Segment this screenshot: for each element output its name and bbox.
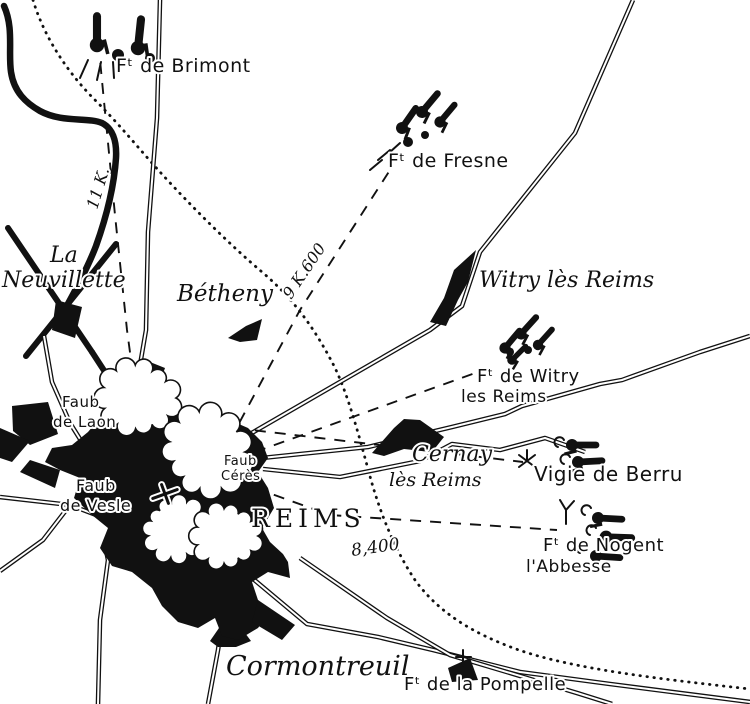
range-line-brimont xyxy=(100,60,138,412)
label-cernay-line1: Cernay xyxy=(412,442,493,467)
bombardment-map-of-reims: Fᵗ de Brimont Fᵗ de Fresne Fᵗ de Witry l… xyxy=(0,0,750,704)
village-betheny xyxy=(228,319,262,342)
label-la-neuvillette-line2: Neuvillette xyxy=(1,268,126,293)
label-faub-ceres-line1: Faub xyxy=(224,454,257,469)
road-network xyxy=(0,0,750,704)
label-fort-brimont: Fᵗ de Brimont xyxy=(116,55,251,77)
label-fort-witry-line2: les Reims xyxy=(461,387,547,407)
label-witry-les-reims: Witry lès Reims xyxy=(479,268,654,293)
label-vigie-de-berru: Vigie de Berru xyxy=(534,462,683,486)
label-betheny: Bétheny xyxy=(176,281,274,307)
label-fort-nogent-line2: l'Abbesse xyxy=(526,557,612,577)
label-la-neuvillette-line1: La xyxy=(49,243,78,268)
label-faub-ceres-line2: Cérès xyxy=(221,469,260,484)
label-faub-vesle-line1: Faub xyxy=(76,476,116,495)
label-distance-fresne: 9 K.600 xyxy=(279,240,330,303)
label-reims: REIMS xyxy=(251,504,366,533)
railway-dotted-line xyxy=(33,0,750,689)
label-cormontreuil: Cormontreuil xyxy=(226,651,409,682)
label-distance-nogent: 8,400 xyxy=(350,534,401,561)
label-faub-vesle-line2: de Vesle xyxy=(60,496,131,515)
label-cernay-line2: lès Reims xyxy=(389,469,482,491)
label-fort-pompelle: Fᵗ de la Pompelle xyxy=(404,674,566,695)
label-faub-laon-line1: Faub xyxy=(62,393,99,411)
map-canvas: Fᵗ de Brimont Fᵗ de Fresne Fᵗ de Witry l… xyxy=(0,0,750,704)
label-fort-witry-line1: Fᵗ de Witry xyxy=(477,366,580,387)
berru-lookout-icon xyxy=(519,450,535,467)
label-fort-nogent-line1: Fᵗ de Nogent xyxy=(543,535,664,556)
fort-witry-icon xyxy=(496,314,558,370)
label-faub-laon-line2: de Laon xyxy=(53,413,116,431)
label-fort-fresne: Fᵗ de Fresne xyxy=(388,150,509,172)
